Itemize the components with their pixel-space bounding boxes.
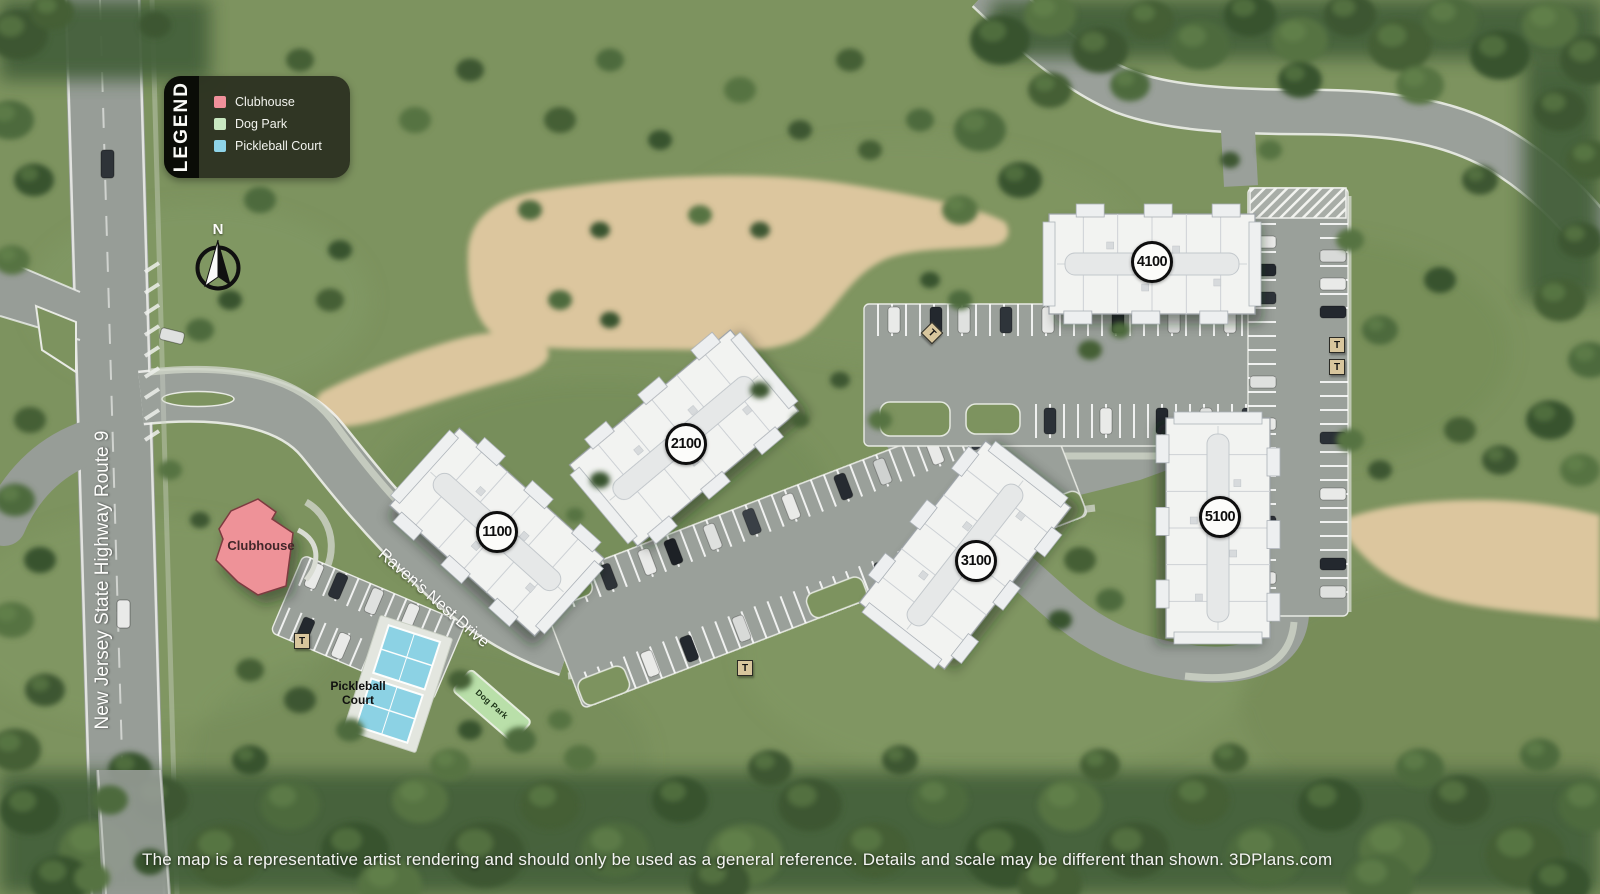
- legend-swatch: [214, 140, 226, 152]
- legend-item: Pickleball Court: [214, 139, 322, 153]
- utility-marker-t: T: [1329, 359, 1345, 375]
- disclaimer-text: The map is a representative artist rende…: [142, 850, 1224, 869]
- legend-item: Clubhouse: [214, 95, 322, 109]
- pickleball-court-label: Pickleball Court: [318, 680, 398, 708]
- legend-title: LEGEND: [171, 81, 193, 172]
- legend-item-label: Pickleball Court: [235, 139, 322, 153]
- brand-text: 3DPlans.com: [1229, 850, 1332, 869]
- building-label-5100: 5100: [1199, 496, 1241, 538]
- legend-item-label: Dog Park: [235, 117, 287, 131]
- building-label-1100: 1100: [476, 511, 518, 553]
- site-plan-map: LEGEND ClubhouseDog ParkPickleball Court…: [0, 0, 1600, 894]
- legend-swatch: [214, 96, 226, 108]
- clubhouse-label: Clubhouse: [215, 538, 307, 553]
- building-label-4100: 4100: [1131, 241, 1173, 283]
- legend-title-band: LEGEND: [164, 76, 199, 178]
- utility-marker-t: T: [294, 633, 310, 649]
- legend-swatch: [214, 118, 226, 130]
- building-label-2100: 2100: [665, 423, 707, 465]
- building-label-3100: 3100: [955, 540, 997, 582]
- legend: LEGEND ClubhouseDog ParkPickleball Court: [164, 76, 350, 178]
- legend-item: Dog Park: [214, 117, 322, 131]
- legend-item-label: Clubhouse: [235, 95, 295, 109]
- map-disclaimer: The map is a representative artist rende…: [142, 850, 1332, 870]
- utility-marker-t: T: [1329, 337, 1345, 353]
- north-label: N: [186, 221, 250, 238]
- utility-marker-t: T: [737, 660, 753, 676]
- legend-items: ClubhouseDog ParkPickleball Court: [214, 95, 322, 153]
- highway-route9-label: New Jersey State Highway Route 9: [92, 414, 116, 746]
